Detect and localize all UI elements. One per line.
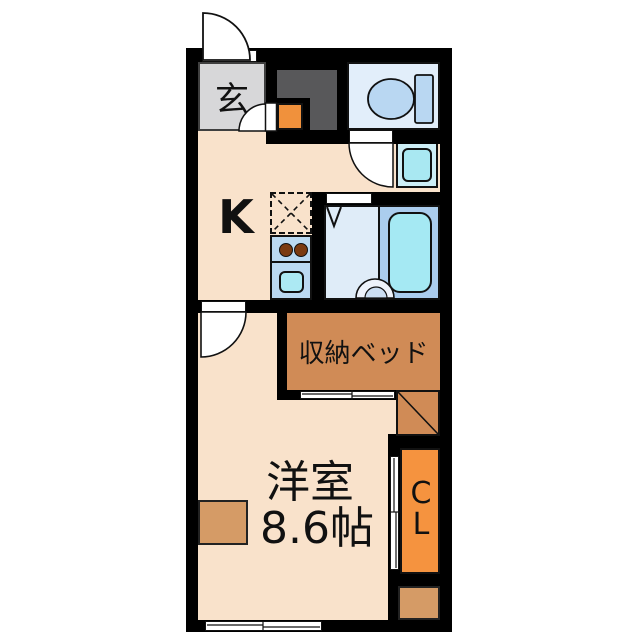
refrigerator-space bbox=[270, 192, 312, 234]
bathtub bbox=[388, 212, 432, 293]
washing-machine-drum bbox=[402, 148, 432, 182]
storage-bed-label: 収納ベッド bbox=[298, 333, 428, 370]
bottom-window bbox=[205, 621, 322, 631]
toilet-room bbox=[347, 62, 440, 130]
wall-bath-left bbox=[312, 192, 324, 313]
bed-sliding-door bbox=[300, 391, 395, 399]
western-room-size: 8.6帖 bbox=[260, 492, 374, 556]
bath-door-opening bbox=[326, 193, 372, 204]
kitchen-label: K bbox=[218, 190, 254, 244]
entrance-label: 玄 bbox=[215, 72, 249, 121]
entrance-step bbox=[277, 103, 303, 130]
shoe-cabinet-side bbox=[310, 70, 337, 130]
wall-bed-left bbox=[277, 313, 287, 400]
kitchen-labelbox: K bbox=[206, 192, 266, 242]
toilet-door-opening bbox=[349, 130, 393, 143]
wall-left bbox=[186, 48, 198, 632]
entrance-room: 玄 bbox=[198, 62, 266, 131]
kitchen-sink bbox=[279, 271, 304, 293]
western-room-sizebox: 8.6帖 bbox=[198, 500, 436, 548]
floor-plan: 玄 収納ベッド CL bbox=[0, 0, 640, 640]
washing-machine bbox=[396, 142, 438, 188]
kitchen-counter bbox=[270, 235, 312, 300]
wall-right bbox=[440, 48, 452, 632]
bed-step-square bbox=[396, 390, 440, 436]
wall-under-toilet-right bbox=[393, 130, 440, 144]
entry-threshold bbox=[202, 50, 257, 62]
wall-closet-top bbox=[388, 434, 452, 448]
corner-square bbox=[398, 586, 440, 620]
stove-section bbox=[272, 237, 310, 263]
room-door-opening bbox=[201, 301, 246, 312]
storage-bed-labelbox: 収納ベッド bbox=[287, 336, 440, 366]
